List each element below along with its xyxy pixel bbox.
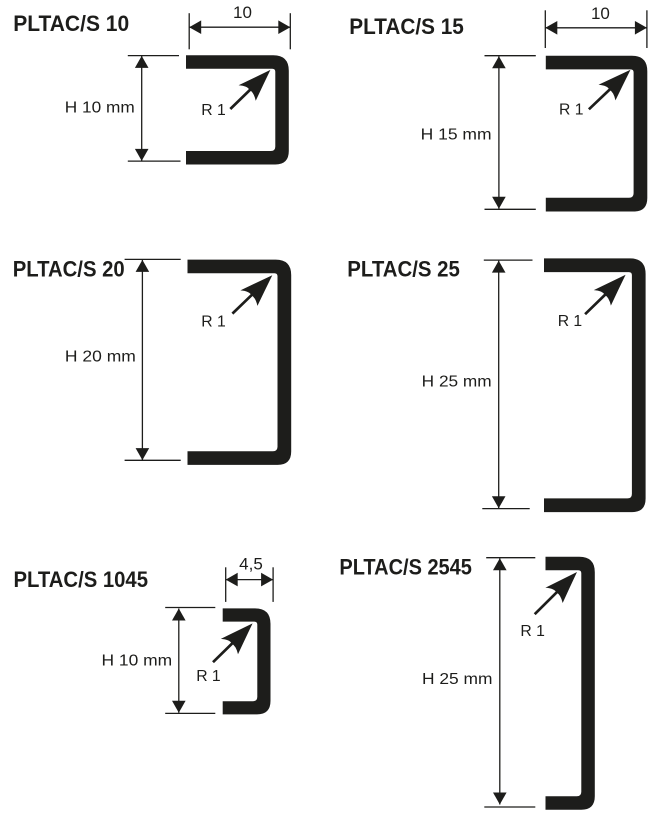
svg-text:PLTAC/S 20: PLTAC/S 20 [13, 257, 125, 282]
svg-text:PLTAC/S 10: PLTAC/S 10 [13, 11, 129, 36]
svg-text:H 10 mm: H 10 mm [65, 100, 135, 117]
svg-text:H 20 mm: H 20 mm [65, 349, 136, 366]
svg-text:H 10 mm: H 10 mm [102, 653, 173, 670]
svg-text:H 25 mm: H 25 mm [422, 671, 493, 688]
svg-text:H 25 mm: H 25 mm [422, 374, 492, 391]
svg-text:R 1: R 1 [520, 623, 545, 640]
svg-text:10: 10 [591, 4, 610, 23]
svg-text:4,5: 4,5 [239, 555, 263, 574]
svg-text:R 1: R 1 [201, 102, 226, 119]
svg-text:H 15 mm: H 15 mm [421, 126, 492, 143]
svg-text:R 1: R 1 [559, 101, 584, 118]
svg-text:PLTAC/S 25: PLTAC/S 25 [347, 257, 460, 282]
svg-text:R 1: R 1 [201, 313, 226, 330]
svg-text:PLTAC/S 1045: PLTAC/S 1045 [14, 567, 149, 592]
svg-text:PLTAC/S 2545: PLTAC/S 2545 [339, 554, 472, 579]
svg-text:R 1: R 1 [196, 668, 221, 685]
svg-text:PLTAC/S 15: PLTAC/S 15 [349, 14, 464, 39]
svg-text:R 1: R 1 [558, 313, 583, 330]
svg-text:10: 10 [233, 3, 252, 22]
